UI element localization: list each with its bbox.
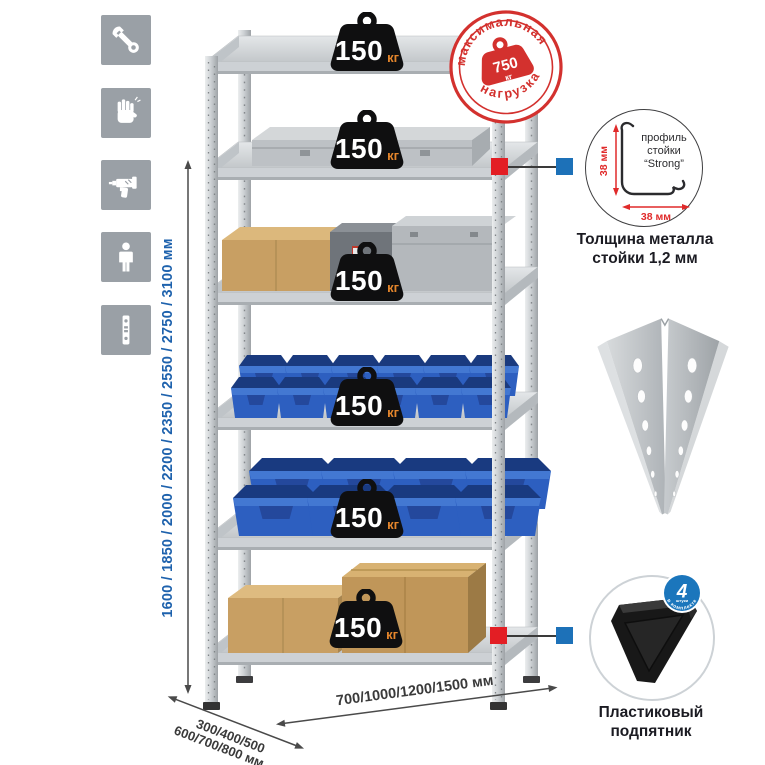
load-value: 150: [334, 612, 382, 644]
shelf-load-badge: 150кг: [319, 479, 415, 545]
perforated-post-image: [588, 300, 738, 535]
load-unit: кг: [387, 517, 399, 532]
connector-blue-top: [556, 158, 573, 175]
shelf-load-badge: 150кг: [319, 110, 415, 176]
height-options-label: 1600 / 1850 / 2000 / 2200 / 2350 / 2550 …: [160, 238, 176, 617]
profile-label-1: профиль: [641, 132, 687, 144]
connector-line-top: [508, 166, 556, 168]
load-value: 150: [335, 265, 383, 297]
load-unit: кг: [387, 280, 399, 295]
load-unit: кг: [387, 148, 399, 163]
profile-label-2: стойки: [647, 145, 681, 157]
connector-red-bottom: [490, 627, 507, 644]
connector-red-top: [491, 158, 508, 175]
product-infographic: 1600 / 1850 / 2000 / 2200 / 2350 / 2550 …: [0, 0, 765, 765]
load-value: 150: [335, 502, 383, 534]
post-profile-drawing: 38 мм 38 мм профиль стойки “Strong”: [586, 110, 702, 226]
load-unit: кг: [386, 627, 398, 642]
profile-caption: Толщина металла стойки 1,2 мм: [560, 230, 730, 268]
load-value: 150: [335, 390, 383, 422]
load-unit: кг: [387, 50, 399, 65]
shelf-load-badge: 150кг: [319, 367, 415, 433]
shelf-load-badge: 150кг: [319, 242, 415, 308]
profile-height-dim: 38 мм: [598, 146, 610, 176]
post-profile-detail-circle: 38 мм 38 мм профиль стойки “Strong”: [585, 109, 703, 227]
included-count-badge: 4 штуки в комплекте: [661, 572, 703, 614]
profile-width-dim: 38 мм: [641, 211, 671, 223]
height-dimension-line: [180, 160, 196, 694]
shelf-load-badge: 150кг: [319, 12, 415, 78]
connector-blue-bottom: [556, 627, 573, 644]
load-unit: кг: [387, 405, 399, 420]
count-sub: штуки: [676, 598, 689, 603]
max-load-stamp: максимальная нагрузка 750 кг: [447, 8, 565, 126]
load-value: 150: [335, 133, 383, 165]
foot-caption: Пластиковый подпятник: [566, 703, 736, 741]
load-value: 150: [335, 35, 383, 67]
plastic-foot-detail-circle: 4 штуки в комплекте: [589, 575, 715, 701]
connector-line-bottom: [507, 635, 556, 637]
profile-label-3: “Strong”: [644, 158, 684, 170]
shelf-load-badge: 150кг: [318, 589, 414, 655]
